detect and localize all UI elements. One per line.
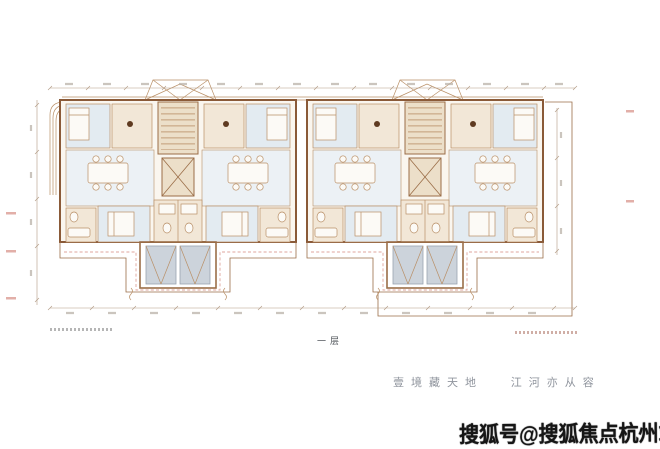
tagline-phrase-2: 江河亦从容 (511, 377, 601, 389)
floor-plan-page: 一层 壹境藏天地 江河亦从容 搜狐号@搜狐焦点杭州站 (0, 0, 660, 449)
building-unit-left (60, 80, 296, 300)
dimension-line-top (48, 84, 577, 90)
building-unit-right (307, 80, 543, 300)
fine-print-note-left (50, 328, 114, 331)
dimension-line-left (31, 100, 39, 305)
tagline-phrase-1: 壹境藏天地 (393, 377, 483, 389)
tagline: 壹境藏天地 江河亦从容 (393, 374, 601, 390)
watermark-stamp: 搜狐号@搜狐焦点杭州站 (459, 415, 660, 448)
dimension-line-right (555, 108, 561, 255)
dimension-line-bottom (48, 306, 577, 313)
floor-label: 一层 (0, 334, 660, 347)
